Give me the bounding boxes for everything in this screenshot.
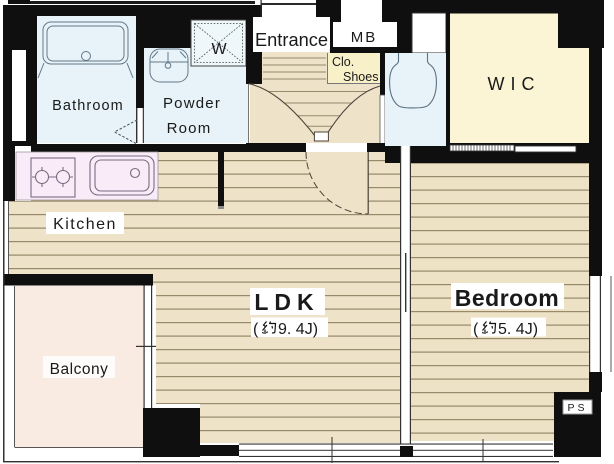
svg-text:Shoes: Shoes (343, 70, 378, 84)
svg-text:(: ( (473, 321, 479, 338)
svg-text:PS: PS (567, 402, 587, 414)
svg-text:Room: Room (167, 120, 212, 137)
svg-text:MB: MB (351, 29, 378, 46)
svg-text:Clo.: Clo. (332, 55, 354, 69)
svg-text:Bathroom: Bathroom (52, 98, 124, 114)
svg-text:Entrance: Entrance (255, 29, 328, 50)
svg-text:Kitchen: Kitchen (53, 216, 117, 233)
svg-text:Bedroom: Bedroom (455, 285, 559, 311)
svg-text:WIC: WIC (488, 74, 541, 94)
svg-text:(: ( (253, 321, 259, 338)
svg-text:Balcony: Balcony (50, 361, 109, 378)
svg-text:W: W (211, 41, 227, 58)
svg-text:LDK: LDK (254, 289, 319, 315)
svg-text:5. 4J): 5. 4J) (498, 321, 538, 338)
svg-text:Powder: Powder (163, 95, 221, 112)
svg-text:9. 4J): 9. 4J) (278, 321, 318, 338)
